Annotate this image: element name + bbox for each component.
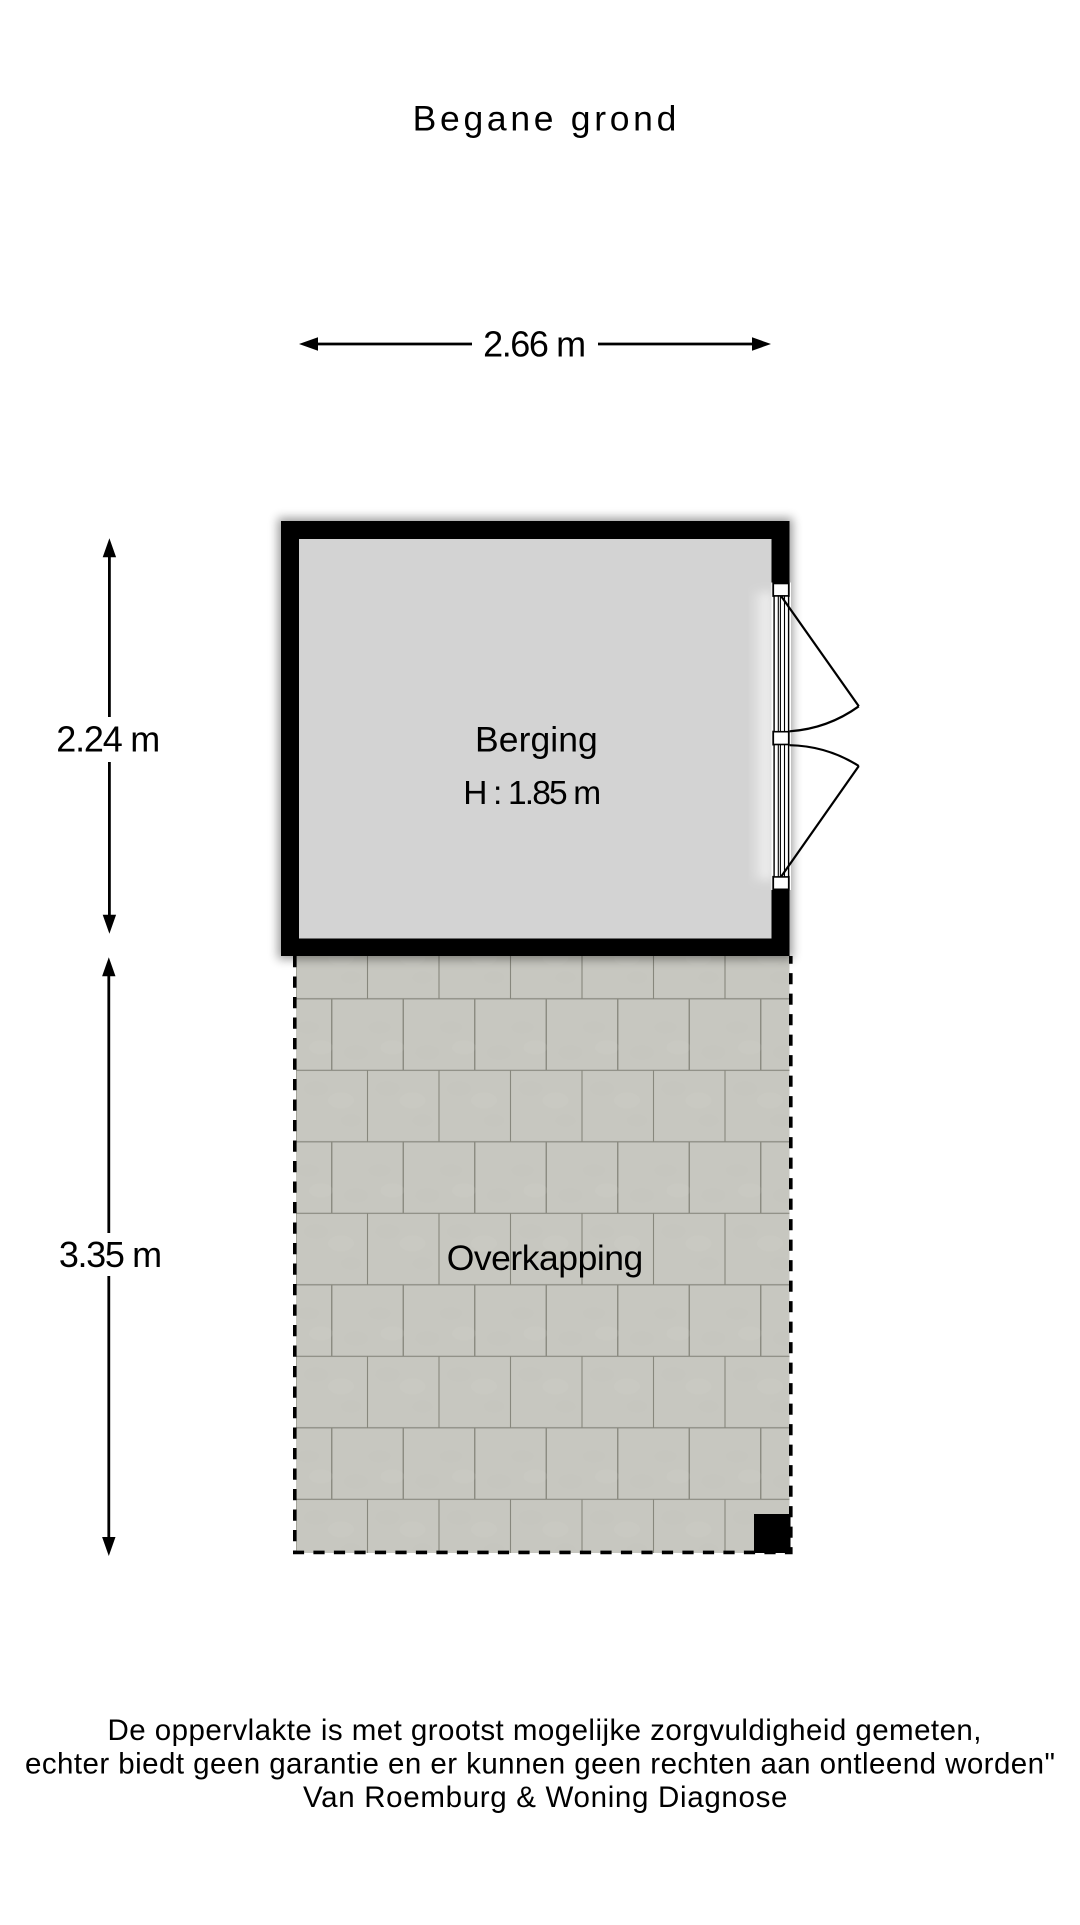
svg-text:Overkapping: Overkapping: [447, 1238, 644, 1278]
svg-text:Van Roemburg & Woning Diagnose: Van Roemburg & Woning Diagnose: [303, 1781, 788, 1814]
svg-text:Berging: Berging: [475, 720, 598, 760]
svg-text:Begane grond: Begane grond: [413, 99, 677, 139]
svg-text:3.35 m: 3.35 m: [59, 1234, 162, 1275]
svg-text:2.66 m: 2.66 m: [483, 324, 586, 365]
svg-text:H : 1.85 m: H : 1.85 m: [463, 775, 601, 812]
svg-text:2.24 m: 2.24 m: [56, 719, 160, 760]
svg-text:De oppervlakte is met grootst: De oppervlakte is met grootst mogelijke …: [108, 1714, 982, 1747]
svg-text:echter biedt geen garantie en: echter biedt geen garantie en er kunnen …: [25, 1748, 1055, 1781]
